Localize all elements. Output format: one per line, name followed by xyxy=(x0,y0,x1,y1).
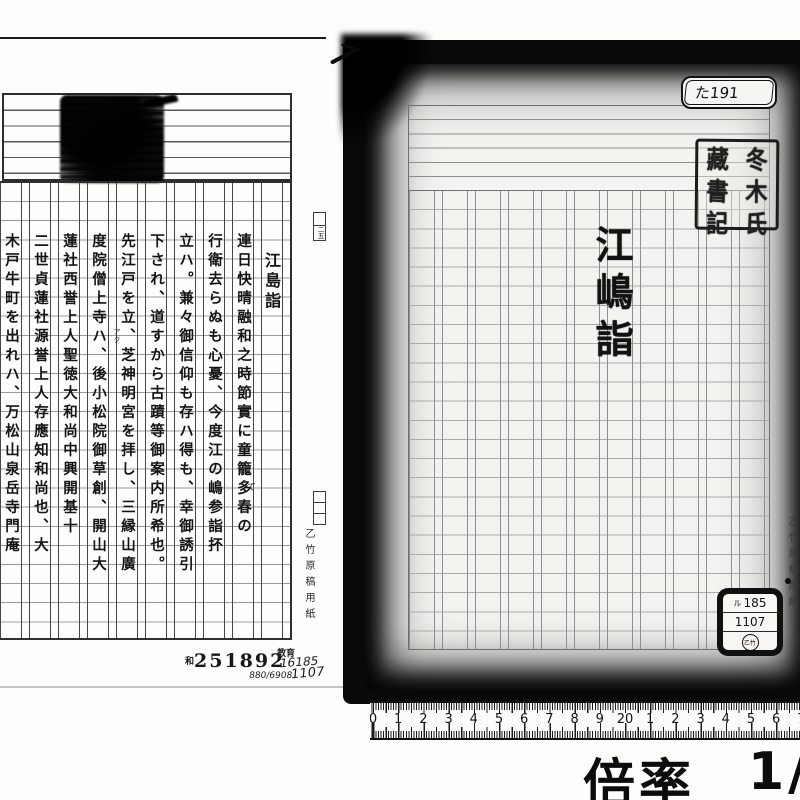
scanned-manuscript-spread: 江島詣 連日快晴融和之時節實に童籠多春の行衛去らぬも心憂、今度江の嶋参詣抔立ハ。… xyxy=(0,0,800,800)
margin-cell-label: 二五 xyxy=(315,226,325,239)
catalog-sticker-face: ル185 1107 乙竹 xyxy=(723,594,777,650)
ruler-number: 0 xyxy=(370,712,377,727)
ruler-number: 4 xyxy=(722,712,730,727)
correction-kana-note: て xyxy=(247,480,256,493)
ruler-number: 1 xyxy=(646,712,654,727)
cover-title-calligraphy: 江嶋詣 xyxy=(599,225,639,366)
accession-number: 251892 xyxy=(194,650,285,672)
manuscript-text-column: 行衛去らぬも心憂、今度江の嶋参詣抔 xyxy=(203,233,225,556)
ruler-number: 5 xyxy=(495,712,503,727)
sticker-row-185: ル185 xyxy=(723,594,777,613)
ruler-number: 2 xyxy=(671,712,679,727)
left-page-bottom-edge xyxy=(0,686,352,688)
catalog-sticker: ル185 1107 乙竹 xyxy=(717,588,783,656)
seal-glyph: 氏 xyxy=(736,203,776,241)
margin-cell-box-top: 二五 xyxy=(313,212,326,241)
library-ink-stamp-smudged xyxy=(60,95,164,183)
ruler-number: 7 xyxy=(545,712,553,727)
sticker-prefix: ル xyxy=(734,598,742,609)
accession-number-stamp: 和251892 xyxy=(185,650,285,672)
manuscript-text-column: 先江戸を立、芝神明宮を拝し、三縁山廣 xyxy=(116,233,138,575)
ruler-number: 6 xyxy=(772,712,780,727)
manuscript-text-column: 度院僧上寺ハ、後小松院御草創、開山大 xyxy=(87,233,109,575)
paper-brand-right: 乙竹原稿用紙 xyxy=(784,516,799,612)
manuscript-text-column: 立ハ。兼々御信仰も存ハ得も、幸御誘引 xyxy=(174,233,196,575)
ruler-number: 3 xyxy=(696,712,704,727)
ruler-number: 6 xyxy=(520,712,528,727)
sticker-row-1107: 1107 xyxy=(723,613,777,632)
ruler-number: 9 xyxy=(596,712,604,727)
interlinear-reading-note: アク xyxy=(112,328,122,344)
call-number-label: た191 xyxy=(681,76,777,109)
ruler-number: 4 xyxy=(470,712,478,727)
centimeter-ruler: 0123456789201234567 xyxy=(370,701,800,740)
manuscript-text-column: 蓮社西誉上人聖徳大和尚中興開基十 xyxy=(58,233,80,537)
seal-glyph: 記 xyxy=(698,204,737,240)
ruler-number: 1 xyxy=(394,712,402,727)
punch-hole-dot xyxy=(785,578,791,584)
left-page-top-edge xyxy=(0,37,326,39)
left-title-column: 江島詣 xyxy=(261,252,283,312)
ruler-ticks-top-5mm xyxy=(370,703,800,713)
paper-brand-left: 乙竹原稿用紙 xyxy=(301,528,316,624)
ruler-number: 20 xyxy=(617,712,634,727)
manuscript-text-column: 木戸牛町を出れハ、万松山泉岳寺門庵 xyxy=(0,233,22,556)
call-number-text: た191 xyxy=(684,80,775,105)
magnification-label: 倍率 xyxy=(583,742,695,800)
manuscript-text-column: 下され、道すから古蹟等御案内所希也。 xyxy=(145,233,167,575)
note-number-1107: 1107 xyxy=(290,665,325,683)
ruler-number: 8 xyxy=(570,712,578,727)
ruler-number: 2 xyxy=(419,712,427,727)
sticker-circle-otsutake: 乙竹 xyxy=(742,634,759,650)
ruler-number: 5 xyxy=(747,712,755,727)
magnification-value: 1/ xyxy=(748,742,800,800)
accession-prefix: 和 xyxy=(185,657,194,667)
margin-cell-box-bottom xyxy=(313,491,326,525)
sticker-number-185: 185 xyxy=(744,596,767,610)
note-number-880-6908: 880/6908 xyxy=(248,671,293,681)
ruler-ticks-bottom-cm xyxy=(370,723,800,738)
ruler-number: 3 xyxy=(444,712,452,727)
manuscript-text-column: 二世貞蓮社源誉上人存應知和尚也、大 xyxy=(29,233,51,556)
owner-collection-seal: 冬木氏藏書記 xyxy=(695,139,780,231)
